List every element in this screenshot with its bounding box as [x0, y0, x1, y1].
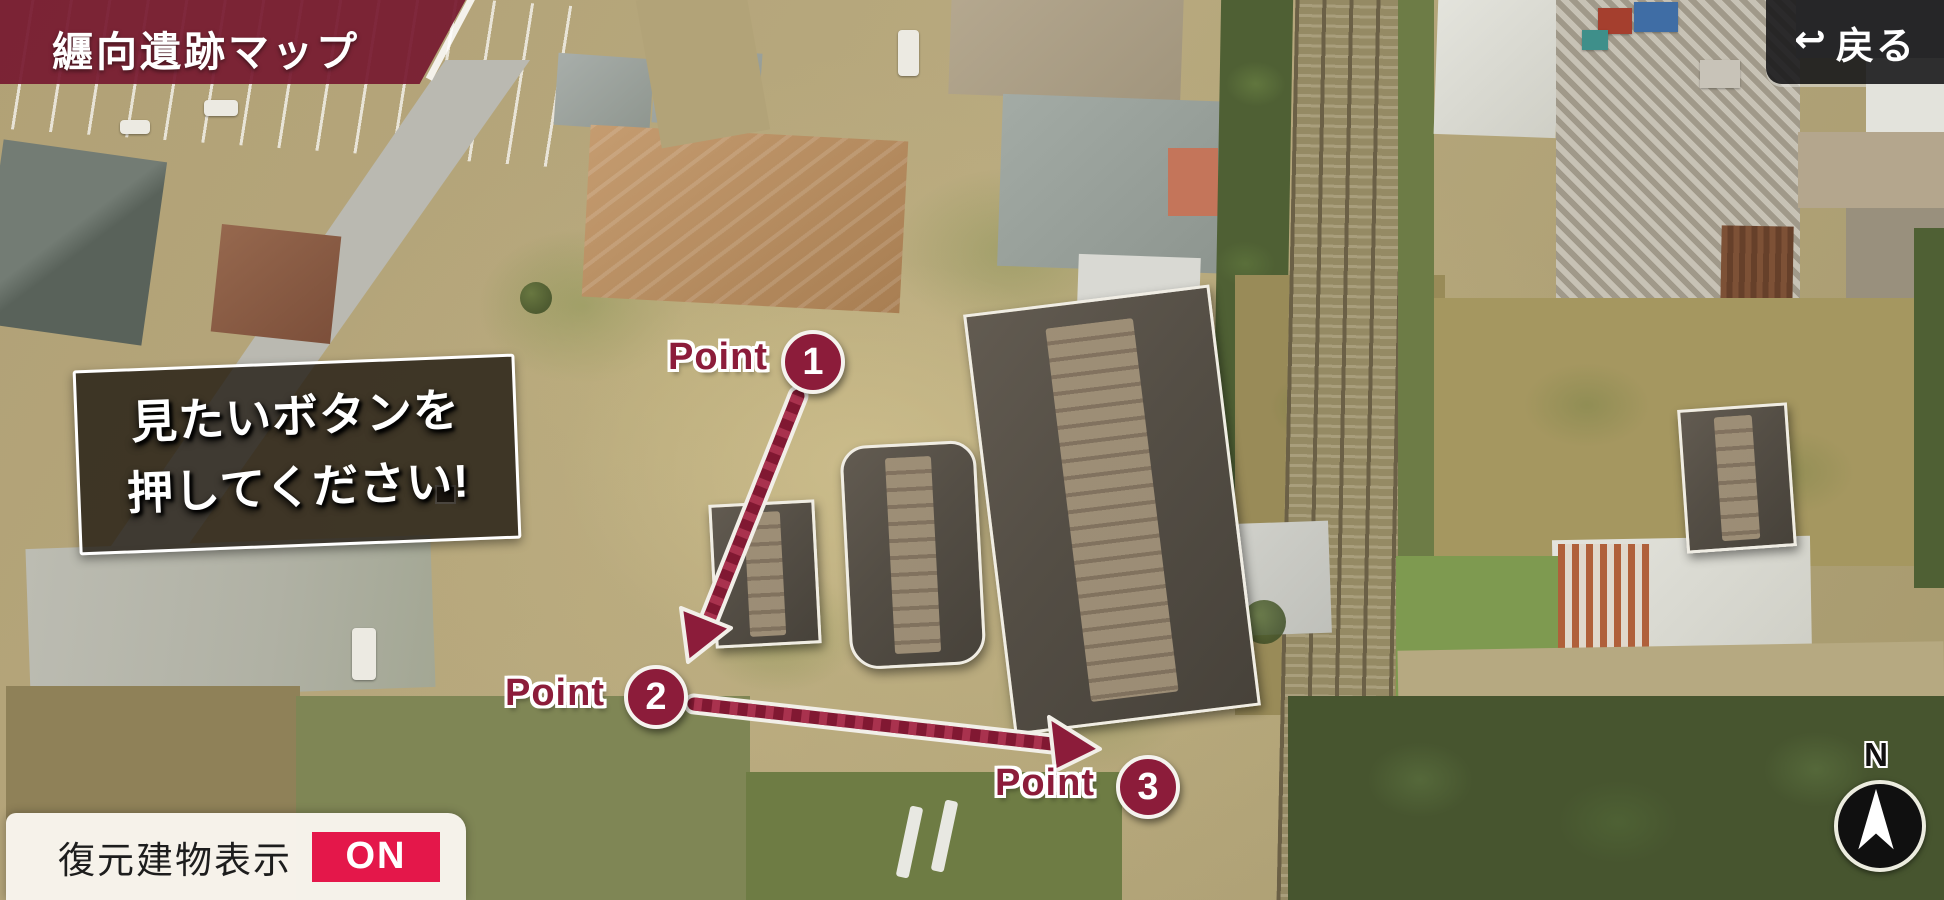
- point-2-number: 2: [645, 676, 666, 719]
- junk-item: [1700, 60, 1740, 88]
- makimuku-map-screen: Point 1 Point 2 Point 3 纒向遺跡マップ ↩ 戻る 見たい…: [0, 0, 1944, 900]
- title-banner: 纒向遺跡マップ: [0, 0, 480, 84]
- roof-ridge: [884, 456, 941, 654]
- car: [898, 30, 919, 76]
- tree: [520, 282, 552, 314]
- reconstruction-toggle[interactable]: 復元建物表示 ON: [6, 813, 466, 900]
- house-roof: [1168, 148, 1218, 216]
- house-roof: [0, 139, 167, 345]
- point-2-button[interactable]: 2: [624, 665, 688, 729]
- point-1-number: 1: [802, 341, 823, 384]
- junk-item: [1582, 30, 1608, 50]
- van: [352, 628, 376, 680]
- reconstructed-building-large: [963, 284, 1261, 735]
- instruction-line-2: 押してください!: [89, 444, 507, 531]
- car: [204, 100, 238, 116]
- house-roof: [554, 53, 655, 132]
- reconstructed-building-small: [708, 499, 821, 648]
- point-3-button[interactable]: 3: [1116, 755, 1180, 819]
- roof-ridge: [744, 511, 786, 637]
- point-3-number: 3: [1137, 766, 1158, 809]
- point-1-label: Point: [668, 336, 768, 379]
- roof-ridge: [1714, 415, 1760, 541]
- toggle-on-badge[interactable]: ON: [312, 832, 440, 882]
- warehouse-roof: [1434, 0, 1561, 138]
- point-2-label: Point: [505, 672, 605, 715]
- roof-ridge: [1046, 318, 1178, 702]
- point-3-label: Point: [995, 762, 1095, 805]
- house-roof: [948, 0, 1183, 102]
- back-button-label: 戻る: [1836, 15, 1916, 70]
- hedge: [1914, 228, 1944, 588]
- house-roof: [211, 224, 342, 344]
- reconstructed-building-east: [1677, 402, 1797, 553]
- return-arrow-icon: ↩: [1794, 21, 1826, 59]
- warehouse-roof-section: [1558, 544, 1650, 650]
- reconstructed-building-medium: [839, 440, 987, 671]
- compass: N: [1826, 736, 1926, 876]
- compass-north-label: N: [1826, 736, 1926, 774]
- toggle-label: 復元建物表示: [58, 830, 292, 884]
- house-roof: [1798, 132, 1944, 208]
- instruction-box: 見たいボタンを 押してください!: [73, 354, 522, 555]
- junk-item: [1634, 2, 1678, 32]
- car: [120, 120, 150, 134]
- back-button[interactable]: ↩ 戻る: [1766, 0, 1944, 84]
- page-title: 纒向遺跡マップ: [52, 18, 360, 78]
- house-roof: [582, 125, 909, 313]
- point-1-button[interactable]: 1: [781, 330, 845, 394]
